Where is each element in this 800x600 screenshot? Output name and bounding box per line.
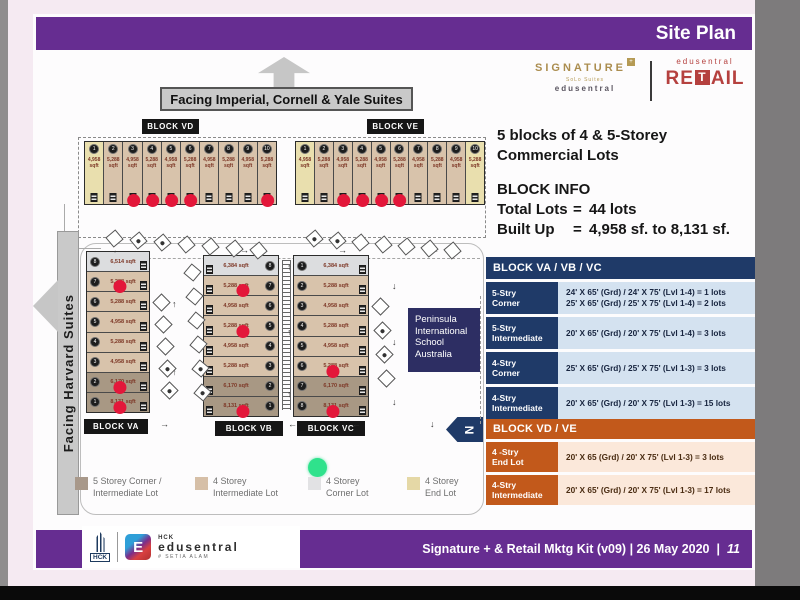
stat-value: 4,958 sf. to 8,131 sf. (589, 220, 759, 240)
logo-divider (650, 61, 652, 101)
lot-number-badge: 3 (265, 361, 275, 371)
lot-number-badge: 2 (265, 381, 275, 391)
accessible-parking-icon (198, 366, 204, 372)
lot-number-badge: 7 (204, 144, 214, 154)
table-block-va-vb-vc: BLOCK VA / VB / VC 5-Stry Corner24' X 65… (486, 257, 755, 419)
table-row: 4 -Stry End Lot20' X 65 (Grd) / 20' X 75… (486, 442, 755, 472)
lot-unit: 75,288 sqft (87, 271, 149, 291)
plus-icon: + (627, 58, 635, 66)
lot-number-badge: 9 (451, 144, 461, 154)
lot-unit: 54,958 sqft (371, 142, 390, 204)
lot-area-label: 5,288 sqft (145, 158, 158, 170)
lot-block-label: BLOCK VA (84, 419, 148, 434)
stat-value: 44 lots (589, 200, 759, 220)
retail-logo: edusentral RETAIL (659, 57, 751, 105)
lot-number-badge: 5 (376, 144, 386, 154)
legend-label: 4 Storey End Lot (425, 476, 459, 499)
shop-front-icon (415, 193, 422, 202)
lot-area-label: 4,958 sqft (412, 158, 425, 170)
lot-block: 86,384 sqft75,288 sqft64,958 sqft55,288 … (203, 255, 279, 417)
shop-front-icon (140, 281, 147, 290)
table-row: 4-Stry Intermediate20' X 65' (Grd) / 20'… (486, 475, 755, 505)
shop-front-icon (140, 301, 147, 310)
shop-front-icon (140, 402, 147, 411)
right-edge (755, 0, 800, 586)
edusentral-logo: HCK edusentral # SETIA ALAM (158, 535, 239, 560)
lot-unit: 94,958 sqft (446, 142, 465, 204)
click-indicator-dot (308, 458, 327, 477)
hck-logo: HCK (90, 532, 110, 562)
table-row-value: 24' X 65' (Grd) / 24' X 75' (Lvl 1-4) = … (558, 282, 755, 314)
table-row-label: 5-Stry Corner (486, 282, 558, 314)
lot-unit: 18,131 sqft (87, 392, 149, 412)
left-edge (0, 0, 8, 586)
lot-unit: 25,288 sqft (314, 142, 333, 204)
block-vd-label: BLOCK VD (142, 119, 199, 134)
lot-unit: 34,958 sqft (333, 142, 352, 204)
shop-front-icon (140, 362, 147, 371)
lot-unit: 74,958 sqft (408, 142, 427, 204)
lot-unit: 65,288 sqft (294, 356, 368, 376)
lot-number-badge: 8 (90, 257, 100, 267)
legend-item: 4 Storey Corner Lot (308, 476, 369, 499)
lot-block-label: BLOCK VB (215, 421, 283, 436)
lot-unit: 45,288 sqft (87, 332, 149, 352)
lot-number-badge: 4 (90, 337, 100, 347)
sold-marker-dot (113, 381, 126, 394)
sold-marker-dot (236, 325, 249, 338)
lot-number-badge: 9 (243, 144, 253, 154)
shop-front-icon (206, 305, 213, 314)
lot-unit: 26,170 sqft (204, 376, 278, 396)
lot-unit: 45,288 sqft (294, 315, 368, 335)
lot-number-badge: 2 (319, 144, 329, 154)
lot-unit: 26,170 sqft (87, 372, 149, 392)
road-arrow-icon: ↑ (287, 390, 292, 399)
shop-front-icon (301, 193, 308, 202)
lot-number-badge: 10 (262, 144, 272, 154)
signature-logo-brand: edusentral (524, 84, 646, 93)
lot-area-label: 4,958 sqft (165, 158, 178, 170)
table-row-value: 20' X 65' (Grd) / 20' X 75' (Lvl 1-4) = … (558, 317, 755, 349)
shop-front-icon (140, 342, 147, 351)
legend-label: 4 Storey Corner Lot (326, 476, 369, 499)
table-row-value: 20' X 65 (Grd) / 20' X 75' (Lvl 1-3) = 3… (558, 442, 755, 472)
lot-block: 14,958 sqft25,288 sqft34,958 sqft45,288 … (84, 141, 277, 205)
accessible-parking-icon (136, 238, 142, 244)
lot-number-badge: 5 (297, 341, 307, 351)
lot-number-badge: 5 (265, 321, 275, 331)
lot-number-badge: 4 (265, 341, 275, 351)
accessible-parking-icon (160, 240, 166, 246)
lot-number-badge: 3 (90, 357, 100, 367)
road-arrow-icon: ↑ (287, 263, 292, 272)
lot-unit: 35,288 sqft (204, 356, 278, 376)
lot-number-badge: 2 (108, 144, 118, 154)
footer-caption: Signature + & Retail Mktg Kit (v09) | 26… (300, 530, 748, 568)
shop-front-icon (359, 406, 366, 415)
sold-marker-dot (165, 194, 178, 207)
lot-unit: 55,288 sqft (204, 315, 278, 335)
facing-left-banner: Facing Harvard Suites (57, 231, 79, 515)
shop-front-icon (206, 346, 213, 355)
lot-area-label: 4,958 sqft (374, 158, 387, 170)
block-ve-label: BLOCK VE (367, 119, 424, 134)
lot-number-badge: 7 (297, 381, 307, 391)
retail-logo-name: RETAIL (659, 68, 751, 90)
lot-area-label: 5,288 sqft (261, 158, 274, 170)
sold-marker-dot (127, 194, 140, 207)
sold-marker-dot (394, 194, 407, 207)
lot-block: 86,514 sqft75,288 sqft65,288 sqft54,958 … (86, 251, 150, 413)
sold-marker-dot (261, 194, 274, 207)
table-row-label: 4-Stry Intermediate (486, 387, 558, 419)
lot-number-badge: 3 (297, 301, 307, 311)
legend-swatch (308, 477, 321, 490)
lot-number-badge: 3 (128, 144, 138, 154)
lot-block: 16,384 sqft25,288 sqft34,958 sqft45,288 … (293, 255, 369, 417)
table-row: 4-Stry Corner25' X 65' (Grd) / 25' X 75'… (486, 352, 755, 384)
legend-item: 5 Storey Corner / Intermediate Lot (75, 476, 162, 499)
lot-area-label: 4,958 sqft (88, 158, 101, 170)
shop-front-icon (359, 326, 366, 335)
lot-unit: 75,288 sqft (204, 275, 278, 295)
shop-front-icon (359, 386, 366, 395)
accessible-parking-icon (200, 390, 206, 396)
table-block-vd-ve: BLOCK VD / VE 4 -Stry End Lot20' X 65 (G… (486, 419, 755, 505)
legend-label: 4 Storey Intermediate Lot (213, 476, 278, 499)
lot-unit: 76,170 sqft (294, 376, 368, 396)
shop-front-icon (244, 193, 251, 202)
shop-front-icon (140, 382, 147, 391)
lot-number-badge: 6 (297, 361, 307, 371)
road-arrow-icon: ↑ (172, 300, 177, 309)
lot-number-badge: 8 (297, 401, 307, 411)
shop-front-icon (206, 193, 213, 202)
legend-label: 5 Storey Corner / Intermediate Lot (93, 476, 162, 499)
lot-number-badge: 5 (90, 317, 100, 327)
legend-swatch (195, 477, 208, 490)
road-arrow-icon: ← (288, 420, 297, 429)
lot-number-badge: 3 (338, 144, 348, 154)
table-row: 5-Stry Intermediate20' X 65' (Grd) / 20'… (486, 317, 755, 349)
accessible-parking-icon (312, 236, 318, 242)
facing-top-label: Facing Imperial, Cornell & Yale Suites (160, 87, 413, 111)
lot-unit: 65,288 sqft (390, 142, 409, 204)
legend-item: 4 Storey End Lot (407, 476, 459, 499)
legend-swatch (407, 477, 420, 490)
lot-unit: 44,958 sqft (204, 336, 278, 356)
info-line-2: Commercial Lots (497, 146, 759, 166)
shop-front-icon (359, 366, 366, 375)
stat-key: Total Lots (497, 200, 573, 220)
road-arrow-icon: ↓ (392, 398, 397, 407)
lot-number-badge: 1 (90, 397, 100, 407)
shop-front-icon (206, 285, 213, 294)
shop-front-icon (453, 193, 460, 202)
lot-number-badge: 7 (413, 144, 423, 154)
table-row-label: 4-Stry Intermediate (486, 475, 558, 505)
shop-front-icon (206, 265, 213, 274)
road-arrow-icon: ↓ (392, 282, 397, 291)
shop-front-icon (140, 322, 147, 331)
sold-marker-dot (236, 284, 249, 297)
page-title-text: Site Plan (656, 23, 736, 45)
page-title: Site Plan (36, 17, 752, 50)
lot-number-badge: 6 (265, 301, 275, 311)
accessible-parking-icon (167, 388, 173, 394)
lot-unit: 25,288 sqft (103, 142, 122, 204)
sold-marker-dot (337, 194, 350, 207)
road-arrow-icon: ← (352, 420, 361, 429)
lot-unit: 74,958 sqft (199, 142, 218, 204)
table-header: BLOCK VA / VB / VC (486, 257, 755, 279)
shop-front-icon (359, 265, 366, 274)
road-arrow-icon: ↓ (392, 338, 397, 347)
lot-number-badge: 5 (166, 144, 176, 154)
lot-number-badge: 2 (297, 281, 307, 291)
lot-number-badge: 8 (432, 144, 442, 154)
lot-unit: 54,958 sqft (294, 336, 368, 356)
lot-number-badge: 1 (89, 144, 99, 154)
lot-area-label: 5,288 sqft (107, 158, 120, 170)
lot-unit: 65,288 sqft (87, 291, 149, 311)
school-label: Peninsula International School Australia (408, 308, 480, 372)
lot-unit: 45,288 sqft (142, 142, 161, 204)
road-arrow-icon: ↓ (430, 420, 435, 429)
sold-marker-dot (326, 405, 339, 418)
lot-unit: 18,131 sqft (204, 396, 278, 416)
road-arrow-icon: → (160, 420, 169, 429)
sold-marker-dot (113, 280, 126, 293)
lot-number-badge: 2 (90, 377, 100, 387)
lot-unit: 45,288 sqft (352, 142, 371, 204)
info-line-1: 5 blocks of 4 & 5-Storey (497, 126, 759, 146)
shop-front-icon (91, 193, 98, 202)
accessible-parking-icon (165, 366, 171, 372)
sold-marker-dot (146, 194, 159, 207)
shop-front-icon (434, 193, 441, 202)
sold-marker-dot (326, 365, 339, 378)
sold-marker-dot (113, 401, 126, 414)
accessible-parking-icon (382, 352, 388, 358)
lot-area-label: 4,958 sqft (337, 158, 350, 170)
lot-number-badge: 6 (90, 297, 100, 307)
accessible-parking-icon (380, 328, 386, 334)
lot-unit: 64,958 sqft (204, 295, 278, 315)
lot-unit: 14,958 sqft (85, 142, 103, 204)
lot-number-badge: 4 (297, 321, 307, 331)
table-row: 4-Stry Intermediate20' X 65' (Grd) / 20'… (486, 387, 755, 419)
block-info-title: BLOCK INFO (497, 180, 759, 200)
shop-front-icon (359, 305, 366, 314)
legend-swatch (75, 477, 88, 490)
table-row-label: 5-Stry Intermediate (486, 317, 558, 349)
block-info-stats: Total Lots=44 lots Built Up=4,958 sf. to… (497, 200, 759, 241)
lot-unit: 14,958 sqft (296, 142, 314, 204)
stat-key: Built Up (497, 220, 573, 240)
footer-kit-text: Signature + & Retail Mktg Kit (v09) | 26… (422, 542, 709, 556)
shop-front-icon (206, 326, 213, 335)
legend-item: 4 Storey Intermediate Lot (195, 476, 278, 499)
lot-area-label: 4,958 sqft (450, 158, 463, 170)
shop-front-icon (359, 285, 366, 294)
edusentral-e-icon: E (125, 534, 151, 560)
lot-number-badge: 1 (300, 144, 310, 154)
shop-front-icon (320, 193, 327, 202)
sold-marker-dot (236, 405, 249, 418)
lot-unit: 34,958 sqft (294, 295, 368, 315)
shop-front-icon (140, 261, 147, 270)
table-row-label: 4-Stry Corner (486, 352, 558, 384)
lot-block: 14,958 sqft25,288 sqft34,958 sqft45,288 … (295, 141, 485, 205)
lot-number-badge: 8 (224, 144, 234, 154)
sold-marker-dot (184, 194, 197, 207)
lot-area-label: 4,958 sqft (299, 158, 312, 170)
lot-area-label: 4,958 sqft (126, 158, 139, 170)
shop-front-icon (225, 193, 232, 202)
road-arrow-icon: ↑ (287, 328, 292, 337)
shop-front-icon (206, 406, 213, 415)
table-row-value: 25' X 65' (Grd) / 25' X 75' (Lvl 1-3) = … (558, 352, 755, 384)
hck-tower-icon (93, 532, 108, 552)
lot-unit: 34,958 sqft (87, 352, 149, 372)
retail-t-box-icon: T (695, 70, 710, 85)
lot-area-label: 4,958 sqft (203, 158, 216, 170)
lot-area-label: 5,288 sqft (393, 158, 406, 170)
sold-marker-dot (356, 194, 369, 207)
lot-area-label: 5,288 sqft (431, 158, 444, 170)
lot-unit: 85,288 sqft (218, 142, 237, 204)
lot-area-label: 5,288 sqft (355, 158, 368, 170)
table-header: BLOCK VD / VE (486, 419, 755, 439)
page-number: 11 (727, 542, 740, 556)
lot-area-label: 5,288 sqft (469, 158, 482, 170)
lot-number-badge: 7 (90, 277, 100, 287)
lot-area-label: 5,288 sqft (318, 158, 331, 170)
footer-logo-divider (117, 532, 118, 562)
lot-number-badge: 8 (265, 261, 275, 271)
table-row-value: 20' X 65' (Grd) / 20' X 75' (Lvl 1-3) = … (558, 475, 755, 505)
lot-unit: 105,288 sqft (257, 142, 276, 204)
signature-logo-sub: SoLo Suites (524, 77, 646, 83)
shop-front-icon (359, 346, 366, 355)
lot-number-badge: 7 (265, 281, 275, 291)
retail-logo-top: edusentral (659, 57, 751, 66)
lot-unit: 86,384 sqft (204, 256, 278, 275)
table-row-label: 4 -Stry End Lot (486, 442, 558, 472)
signature-logo-name: SIGNATURE (535, 62, 626, 74)
lot-number-badge: 4 (147, 144, 157, 154)
lot-number-badge: 10 (470, 144, 480, 154)
shop-front-icon (110, 193, 117, 202)
lot-unit: 105,288 sqft (465, 142, 484, 204)
slide-viewer: Site Plan SIGNATURE+ SoLo Suites edusent… (0, 0, 800, 600)
table-row: 5-Stry Corner24' X 65' (Grd) / 24' X 75'… (486, 282, 755, 314)
block-info-panel: 5 blocks of 4 & 5-Storey Commercial Lots… (497, 126, 759, 240)
lot-area-label: 5,288 sqft (222, 158, 235, 170)
lot-unit: 85,288 sqft (427, 142, 446, 204)
lot-unit: 65,288 sqft (180, 142, 199, 204)
lot-unit: 94,958 sqft (238, 142, 257, 204)
accessible-parking-icon (335, 238, 341, 244)
lot-number-badge: 1 (297, 261, 307, 271)
lot-number-badge: 6 (185, 144, 195, 154)
lot-unit: 54,958 sqft (161, 142, 180, 204)
table-row-value: 20' X 65' (Grd) / 20' X 75' (Lvl 1-3) = … (558, 387, 755, 419)
lot-number-badge: 1 (265, 401, 275, 411)
lot-unit: 34,958 sqft (122, 142, 141, 204)
lot-unit: 54,958 sqft (87, 311, 149, 331)
lot-unit: 25,288 sqft (294, 275, 368, 295)
lot-number-badge: 4 (357, 144, 367, 154)
lot-unit: 16,384 sqft (294, 256, 368, 275)
lot-area-label: 4,958 sqft (241, 158, 254, 170)
shop-front-icon (472, 193, 479, 202)
signature-logo: SIGNATURE+ SoLo Suites edusentral (524, 58, 646, 106)
lot-number-badge: 6 (394, 144, 404, 154)
footer-logos: HCK E HCK edusentral # SETIA ALAM (82, 526, 300, 568)
lot-unit: 88,131 sqft (294, 396, 368, 416)
sold-marker-dot (375, 194, 388, 207)
lot-area-label: 5,288 sqft (184, 158, 197, 170)
